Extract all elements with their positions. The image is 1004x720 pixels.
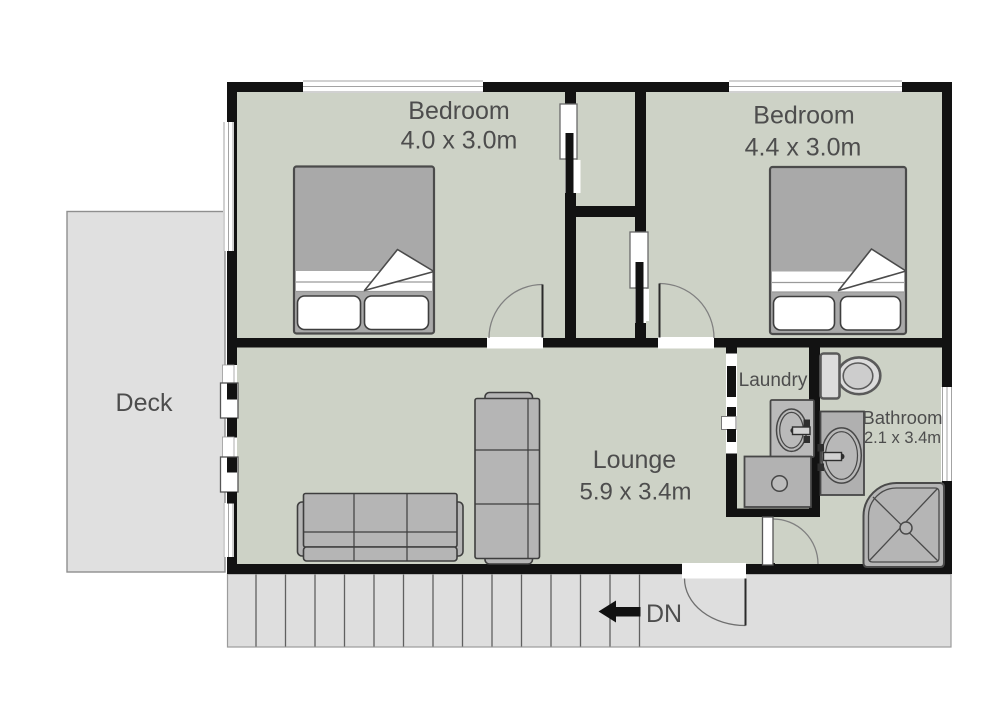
svg-text:5.9 x 3.4m: 5.9 x 3.4m (579, 479, 691, 506)
svg-text:2.1 x 3.4m: 2.1 x 3.4m (864, 429, 941, 447)
svg-text:Deck: Deck (116, 389, 173, 417)
svg-text:Lounge: Lounge (593, 446, 676, 474)
svg-text:Laundry: Laundry (739, 370, 808, 391)
svg-text:4.4 x 3.0m: 4.4 x 3.0m (745, 134, 862, 162)
svg-text:Bedroom: Bedroom (408, 97, 509, 125)
svg-text:DN: DN (646, 600, 682, 628)
svg-text:Bedroom: Bedroom (753, 102, 854, 130)
svg-text:Bathroom: Bathroom (862, 407, 942, 428)
svg-text:4.0 x 3.0m: 4.0 x 3.0m (401, 127, 518, 155)
